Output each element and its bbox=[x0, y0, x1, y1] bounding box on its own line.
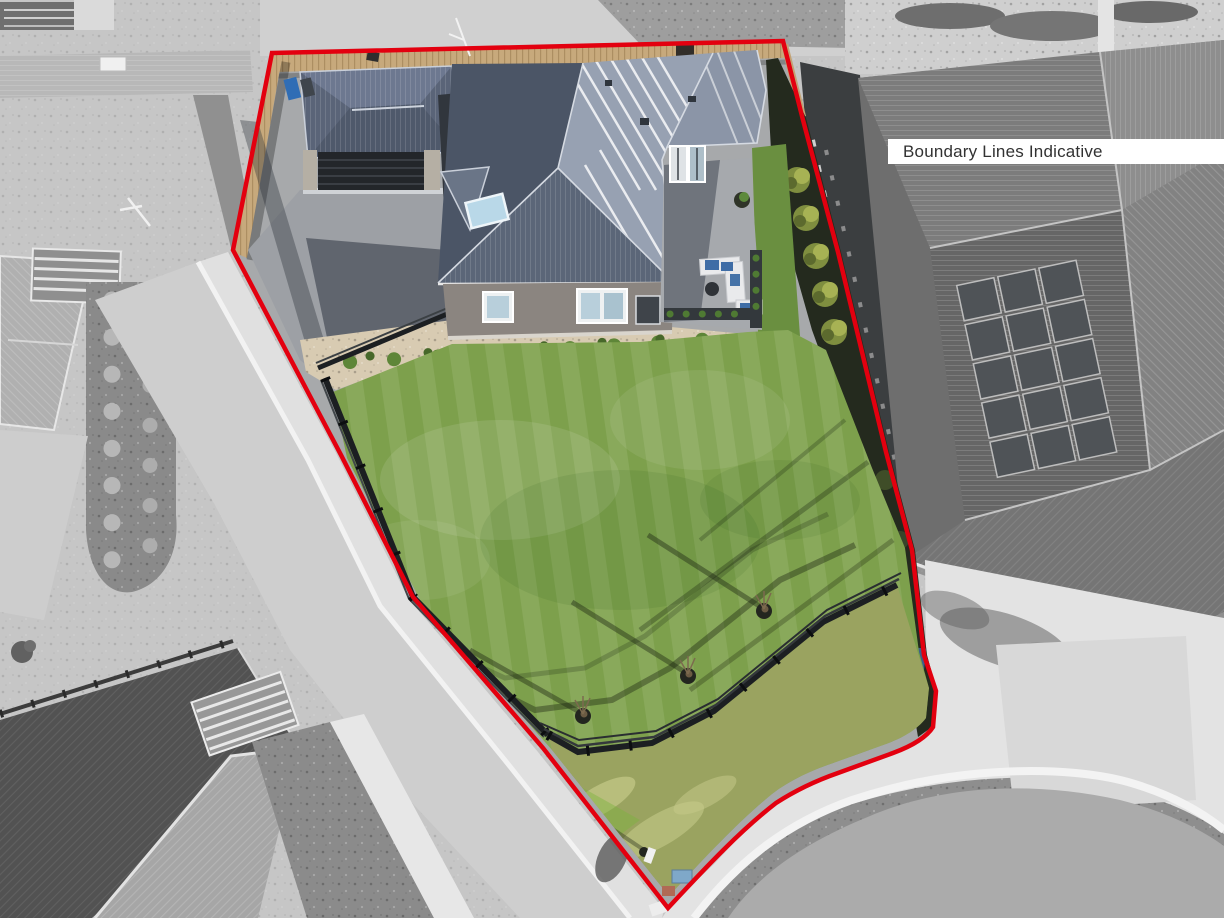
window-glass bbox=[487, 296, 509, 318]
window-glass bbox=[581, 293, 600, 319]
garage-roof-texture bbox=[300, 66, 460, 158]
window-glass bbox=[604, 293, 623, 319]
boundary-label: Boundary Lines Indicative bbox=[888, 139, 1224, 164]
roof-vent bbox=[605, 80, 612, 86]
aerial-photo-stage: Boundary Lines Indicative bbox=[0, 0, 1224, 918]
shrub-row bbox=[1102, 1, 1198, 23]
brick-pillar bbox=[424, 150, 440, 190]
roof-vent bbox=[688, 96, 696, 102]
patio bbox=[660, 146, 762, 330]
small-sign bbox=[100, 57, 126, 71]
utility-box-blue bbox=[672, 870, 692, 883]
brick-pillar bbox=[303, 150, 317, 190]
coffee-table bbox=[705, 282, 719, 296]
utility-box-red bbox=[662, 886, 675, 896]
potted-plant bbox=[739, 192, 749, 202]
french-doors bbox=[670, 146, 705, 182]
concrete-pad bbox=[74, 0, 114, 30]
shrub-row bbox=[895, 3, 1005, 29]
boundary-label-text: Boundary Lines Indicative bbox=[903, 142, 1103, 161]
neighbor-driveway bbox=[996, 636, 1196, 812]
tree bbox=[24, 640, 36, 652]
roof-vent bbox=[640, 118, 649, 125]
door bbox=[636, 296, 660, 324]
shrub-row bbox=[990, 11, 1114, 41]
aerial-photo bbox=[0, 0, 1224, 918]
